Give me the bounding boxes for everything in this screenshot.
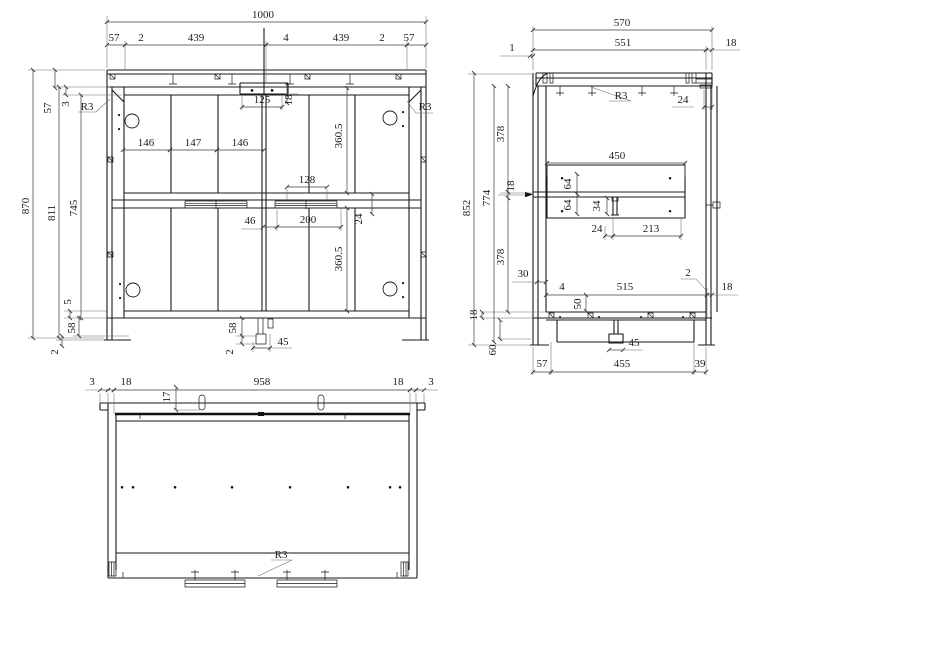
- dim-front-s128: 128: [299, 174, 316, 186]
- front-view: 1000 57 2 439 4 439 2 57 57 3 R3 870 811…: [20, 9, 433, 355]
- cad-drawing: 1000 57 2 439 4 439 2 57 57 3 R3 870 811…: [0, 0, 938, 650]
- dim-front-seg: 2: [379, 32, 385, 44]
- dim-side-64a: 64: [562, 178, 574, 190]
- front-screw-dots: [118, 89, 404, 299]
- top-object-lines: [100, 403, 425, 578]
- dim-side-b45: 45: [629, 337, 641, 349]
- dim-front-h745: 745: [68, 199, 80, 216]
- dim-side-h774: 774: [481, 189, 493, 206]
- front-hole: [383, 111, 397, 125]
- top-details: [109, 395, 408, 587]
- dim-side-shelf-width: 450: [609, 150, 626, 162]
- dim-front-gap3: 3: [60, 101, 72, 107]
- dim-side-b18: 18: [722, 281, 734, 293]
- top-view: 3 18 958 18 3 17 R3: [85, 376, 438, 587]
- dim-top-3-right: 3: [428, 376, 434, 388]
- dim-front-seg: 2: [138, 32, 144, 44]
- dim-front-h811: 811: [46, 205, 58, 221]
- dim-side-inner-width: 551: [615, 37, 632, 49]
- top-center-mark: [258, 412, 264, 416]
- top-holes-row: [121, 486, 402, 489]
- side-screw-dots: [559, 177, 684, 318]
- side-shelf-arrow: [525, 192, 533, 198]
- dim-front-s46: 46: [245, 215, 257, 227]
- top-r3-label: R3: [275, 549, 288, 561]
- dim-side-60: 60: [487, 344, 499, 356]
- dim-front-plate-height: 18: [283, 94, 295, 106]
- dim-front-panel-upper: 360.5: [333, 123, 345, 148]
- dim-top-3-left: 3: [89, 376, 95, 388]
- dim-front-seg: 57: [109, 32, 121, 44]
- dim-front-b58: 58: [66, 322, 78, 334]
- dim-front-rail-height: 57: [42, 102, 54, 114]
- dim-front-seg: 57: [404, 32, 416, 44]
- dim-side-off1: 1: [509, 42, 515, 54]
- dim-side-total-width: 570: [614, 17, 631, 29]
- dim-front-divider: 146: [138, 137, 155, 149]
- dim-front-b2: 2: [49, 349, 61, 355]
- dim-side-b455: 455: [614, 358, 631, 370]
- dim-side-18-shelf: 18: [505, 180, 517, 192]
- dim-side-34: 34: [591, 200, 603, 212]
- dim-side-18-base: 18: [468, 309, 480, 321]
- dim-front-plate-width: 125: [254, 94, 271, 106]
- dim-side-24-top: 24: [678, 94, 690, 106]
- dim-side-b57: 57: [537, 358, 549, 370]
- dim-side-64b: 64: [562, 199, 574, 211]
- dim-side-30: 30: [518, 268, 530, 280]
- dim-front-s200: 200: [300, 214, 317, 226]
- dim-side-b2: 2: [685, 267, 691, 279]
- cad-drawing-canvas: 1000 57 2 439 4 439 2 57 57 3 R3 870 811…: [0, 0, 938, 650]
- dim-front-s24: 24: [353, 213, 365, 225]
- front-details: [108, 74, 426, 344]
- dim-front-seg: 439: [188, 32, 205, 44]
- top-extension-lines: [85, 390, 438, 576]
- dim-front-f45: 45: [278, 336, 290, 348]
- dim-side-24: 24: [592, 223, 604, 235]
- front-r3-right-label: R3: [419, 101, 432, 113]
- dim-front-f58: 58: [227, 322, 239, 334]
- dim-side-b4: 4: [559, 281, 565, 293]
- dim-front-f2: 2: [224, 349, 236, 355]
- side-view: 570 551 1 18 R3 24 852 774 378 18 378 30…: [461, 17, 740, 375]
- dim-front-b5: 5: [62, 299, 74, 305]
- dim-top-18-right: 18: [393, 376, 405, 388]
- dim-side-off18: 18: [726, 37, 738, 49]
- dim-front-panel-lower: 360.5: [333, 246, 345, 271]
- dim-side-h852: 852: [461, 200, 473, 217]
- dim-front-seg: 439: [333, 32, 350, 44]
- dim-side-b515: 515: [617, 281, 634, 293]
- side-r3-label: R3: [615, 90, 628, 102]
- dim-front-seg: 4: [283, 32, 289, 44]
- dim-front-divider: 147: [185, 137, 202, 149]
- front-r3-left-label: R3: [81, 101, 94, 113]
- dim-side-378b: 378: [495, 248, 507, 265]
- front-hole: [126, 283, 140, 297]
- dim-side-378a: 378: [495, 125, 507, 142]
- side-object-lines: [530, 73, 717, 345]
- front-hole: [125, 114, 139, 128]
- dim-side-b39: 39: [695, 358, 707, 370]
- front-extension-lines: [28, 16, 433, 352]
- dim-top-17: 17: [161, 391, 173, 403]
- dim-front-divider: 146: [232, 137, 249, 149]
- dim-front-h870: 870: [20, 197, 32, 214]
- dim-top-958: 958: [254, 376, 271, 388]
- front-hole: [383, 282, 397, 296]
- front-object-lines: [104, 70, 429, 340]
- dim-top-18-left: 18: [121, 376, 133, 388]
- dim-side-b50: 50: [572, 298, 584, 310]
- dim-side-213: 213: [643, 223, 660, 235]
- dim-front-total-width: 1000: [252, 9, 275, 21]
